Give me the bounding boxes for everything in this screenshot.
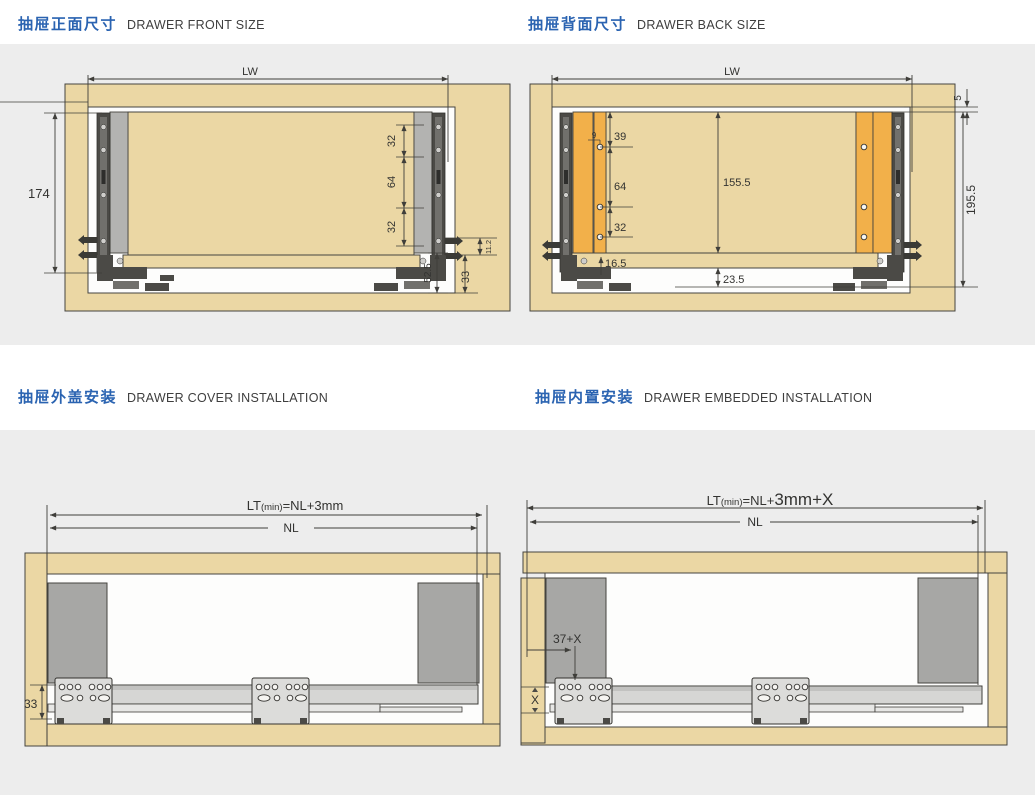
dim-pitch-top: 32 <box>386 135 398 147</box>
middle-mounting-bracket <box>752 678 809 724</box>
drawer-front-panel <box>123 112 420 268</box>
front-mounting-bracket <box>555 678 612 724</box>
dim-back-height: 155.5 <box>723 177 751 189</box>
embedded-drawer-front <box>521 578 545 743</box>
dim-height: 174 <box>28 186 50 201</box>
dim-bottom: 52.5 <box>423 263 434 283</box>
section-title-cover-install: 抽屉外盖安装DRAWER COVER INSTALLATION <box>18 386 328 407</box>
title-zh: 抽屉背面尺寸 <box>528 16 627 33</box>
dim-lw: LW <box>242 66 258 78</box>
dim-total: 195.5 <box>964 185 978 215</box>
left-slide-rail <box>97 112 128 272</box>
front-mounting-bracket <box>55 678 112 724</box>
dim-pitch-bot: 32 <box>386 221 398 233</box>
title-zh: 抽屉内置安装 <box>535 389 634 406</box>
dim-nl: NL <box>747 515 763 529</box>
drawer-cover-installation-diagram: LT(min)=NL+3mm NL 33 <box>0 430 515 795</box>
right-slide-rail <box>414 112 445 272</box>
title-en: DRAWER COVER INSTALLATION <box>127 391 328 405</box>
middle-mounting-bracket <box>252 678 309 724</box>
dim-front-offset: 37+X <box>553 632 581 646</box>
dim-rail: 33 <box>460 271 472 283</box>
left-back-brackets <box>573 112 606 253</box>
dim-pitch-mid: 64 <box>386 176 398 188</box>
dim-lip: 11.2 <box>484 240 493 254</box>
drawer-embedded-installation-diagram: LT(min)=NL+3mm+X NL 37+X X <box>515 430 1035 795</box>
dim-inset: 16.5 <box>605 258 626 270</box>
dim-clearance: 23.5 <box>723 274 744 286</box>
dim-lt-formula: LT(min)=NL+3mm <box>247 498 344 513</box>
dim-p32: 32 <box>614 222 626 234</box>
drawer-front-size-diagram: LW 174 32 64 32 52.5 11.2 3 <box>0 45 515 345</box>
dim-nl: NL <box>283 521 299 535</box>
right-drawer-side-section <box>418 583 479 683</box>
title-zh: 抽屉外盖安装 <box>18 389 117 406</box>
dim-lw: LW <box>724 66 740 78</box>
left-drawer-side-section <box>48 583 107 683</box>
dim-gap-x: X <box>531 693 539 707</box>
right-drawer-side-section <box>918 578 978 683</box>
title-zh: 抽屉正面尺寸 <box>18 16 117 33</box>
dim-p39: 39 <box>614 131 626 143</box>
title-en: DRAWER EMBEDDED INSTALLATION <box>644 391 872 405</box>
title-en: DRAWER BACK SIZE <box>637 18 766 32</box>
section-title-back-size: 抽屉背面尺寸DRAWER BACK SIZE <box>528 13 766 34</box>
right-back-brackets <box>856 112 892 253</box>
title-en: DRAWER FRONT SIZE <box>127 18 265 32</box>
dim-hole-offset: 9 <box>592 131 597 140</box>
right-slide-rail <box>892 113 904 272</box>
catalog-page: 抽屉正面尺寸DRAWER FRONT SIZE 抽屉背面尺寸DRAWER BAC… <box>0 0 1035 795</box>
dim-top-gap: 5 <box>953 95 964 101</box>
left-drawer-side-section <box>546 578 606 683</box>
left-slide-rail <box>560 113 572 272</box>
section-title-embedded-install: 抽屉内置安装DRAWER EMBEDDED INSTALLATION <box>535 386 872 407</box>
dim-rail-height: 33 <box>24 697 38 711</box>
section-title-front-size: 抽屉正面尺寸DRAWER FRONT SIZE <box>18 13 265 34</box>
drawer-back-size-diagram: LW 5 195.5 155.5 39 64 32 9 16.5 <box>515 45 1035 345</box>
dim-p64: 64 <box>614 181 626 193</box>
dim-lt-formula: LT(min)=NL+3mm+X <box>707 490 834 509</box>
